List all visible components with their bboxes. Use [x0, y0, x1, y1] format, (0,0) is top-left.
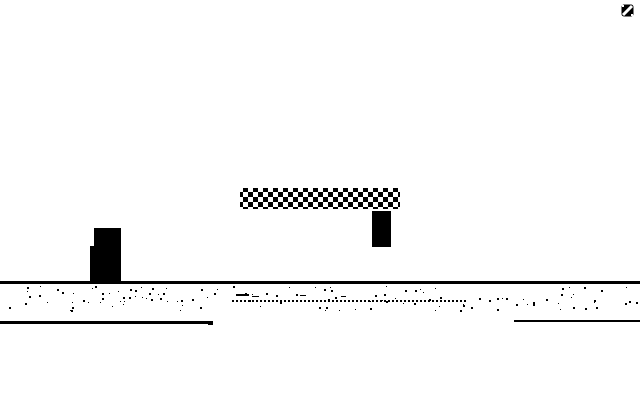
- speckle: [497, 309, 499, 311]
- speckle: [149, 293, 151, 295]
- speckle: [440, 297, 442, 299]
- speckle: [233, 286, 235, 288]
- checkered-platform: [240, 188, 400, 209]
- speckle: [100, 302, 101, 303]
- speckle: [471, 307, 473, 309]
- speckle: [135, 290, 137, 292]
- speckle: [489, 300, 491, 302]
- lower-ledge-left: [0, 321, 213, 324]
- speckle: [516, 304, 518, 306]
- speckle: [463, 305, 465, 307]
- speckle: [523, 299, 524, 300]
- speckle: [326, 307, 328, 309]
- speckle: [141, 287, 142, 288]
- speckle: [331, 290, 333, 292]
- speckle: [192, 299, 194, 301]
- slashed-zero-icon: [621, 4, 634, 17]
- speckle: [375, 295, 377, 297]
- speckle: [319, 307, 321, 309]
- speckle: [594, 300, 596, 302]
- speckle: [585, 308, 587, 310]
- speckle: [92, 288, 93, 289]
- speckle: [245, 293, 247, 295]
- speckle: [9, 307, 11, 309]
- speckle: [27, 291, 28, 292]
- speckle: [560, 309, 561, 310]
- score-counter: [621, 2, 634, 15]
- speckle: [129, 297, 131, 299]
- speckle: [386, 286, 387, 287]
- speckle: [124, 301, 125, 302]
- speckle: [27, 287, 29, 289]
- speckle: [152, 288, 154, 290]
- speckle: [573, 307, 575, 309]
- speckle: [479, 298, 481, 300]
- speckle: [166, 288, 167, 289]
- speckle: [88, 302, 89, 303]
- speckle: [636, 302, 638, 304]
- speckle: [325, 310, 326, 311]
- speckle: [135, 296, 136, 297]
- speckle: [118, 291, 119, 292]
- game-viewport[interactable]: [0, 0, 640, 400]
- speckle: [573, 294, 574, 295]
- speckle: [266, 293, 268, 295]
- speckle: [177, 301, 178, 302]
- speckle: [146, 298, 147, 299]
- speckle: [289, 287, 290, 288]
- speckle: [561, 294, 563, 296]
- speckle: [533, 302, 535, 304]
- speckle: [439, 306, 440, 307]
- enemy-block: [372, 211, 391, 247]
- speckle: [370, 308, 372, 310]
- speckle: [182, 305, 183, 306]
- speckle: [163, 293, 165, 295]
- speckle: [39, 295, 41, 297]
- speckle: [330, 287, 331, 288]
- speckle: [395, 298, 396, 299]
- speckle: [62, 292, 64, 294]
- speckle: [489, 300, 491, 302]
- speckle: [109, 293, 110, 294]
- speckle: [497, 298, 499, 300]
- speckle: [315, 287, 316, 288]
- speckle: [123, 297, 125, 299]
- speckle: [629, 301, 631, 303]
- speckle: [217, 289, 218, 290]
- speckle: [324, 289, 326, 291]
- ground-dotted-line: [232, 300, 468, 302]
- speckle: [151, 299, 153, 301]
- speckle: [355, 309, 356, 310]
- speckle: [558, 303, 559, 304]
- speckle: [460, 310, 462, 312]
- speckle: [403, 303, 404, 304]
- speckle: [625, 303, 627, 305]
- speckle: [25, 303, 27, 305]
- speckle: [102, 298, 104, 300]
- speckle: [180, 310, 181, 311]
- speckle: [95, 286, 97, 288]
- speckle: [160, 298, 162, 300]
- speckle: [384, 294, 386, 296]
- speckle: [207, 297, 208, 298]
- speckle: [123, 304, 124, 305]
- speckle: [102, 293, 104, 295]
- speckle: [601, 290, 603, 292]
- lower-ledge-right: [514, 320, 640, 322]
- speckle: [72, 302, 73, 303]
- speckle: [420, 289, 421, 290]
- speckle: [201, 289, 203, 291]
- speckle: [167, 301, 168, 302]
- speckle: [562, 288, 564, 290]
- player-sprite: [94, 228, 121, 283]
- speckle: [423, 292, 424, 293]
- ground-dash: [341, 296, 346, 297]
- player-sprite-foot: [90, 246, 94, 283]
- speckle: [40, 286, 41, 287]
- speckle: [71, 310, 73, 312]
- speckle: [626, 287, 627, 288]
- ground-dash: [252, 296, 259, 297]
- speckle: [596, 307, 598, 309]
- speckle: [506, 298, 508, 300]
- ground-dash: [300, 295, 306, 296]
- speckle: [280, 302, 282, 304]
- speckle: [120, 301, 121, 302]
- speckle: [296, 294, 298, 296]
- speckle: [276, 295, 278, 297]
- speckle: [335, 297, 337, 299]
- speckle: [112, 306, 113, 307]
- speckle: [414, 303, 416, 305]
- speckle: [571, 297, 572, 298]
- speckle: [142, 297, 143, 298]
- speckle: [57, 289, 59, 291]
- speckle: [546, 299, 548, 301]
- speckle: [83, 300, 85, 302]
- speckle: [533, 304, 535, 306]
- speckle: [584, 287, 586, 289]
- speckle: [47, 302, 48, 303]
- speckle: [181, 300, 183, 302]
- speckle: [527, 304, 528, 305]
- speckle: [252, 294, 253, 295]
- speckle: [405, 290, 407, 292]
- speckle: [569, 287, 570, 288]
- ground-line: [0, 281, 640, 284]
- speckle: [73, 293, 74, 294]
- speckle: [594, 302, 595, 303]
- speckle: [130, 289, 132, 291]
- speckle: [463, 304, 464, 305]
- speckle: [502, 298, 503, 299]
- speckle: [29, 296, 31, 298]
- speckle: [158, 294, 159, 295]
- speckle: [415, 290, 417, 292]
- speckle: [70, 310, 71, 311]
- speckle: [435, 288, 436, 289]
- speckle: [339, 310, 340, 311]
- speckle: [200, 307, 202, 309]
- speckle: [260, 306, 261, 307]
- ground-dash: [236, 294, 249, 296]
- speckle: [435, 310, 436, 311]
- speckle: [72, 307, 74, 309]
- speckle: [214, 293, 216, 295]
